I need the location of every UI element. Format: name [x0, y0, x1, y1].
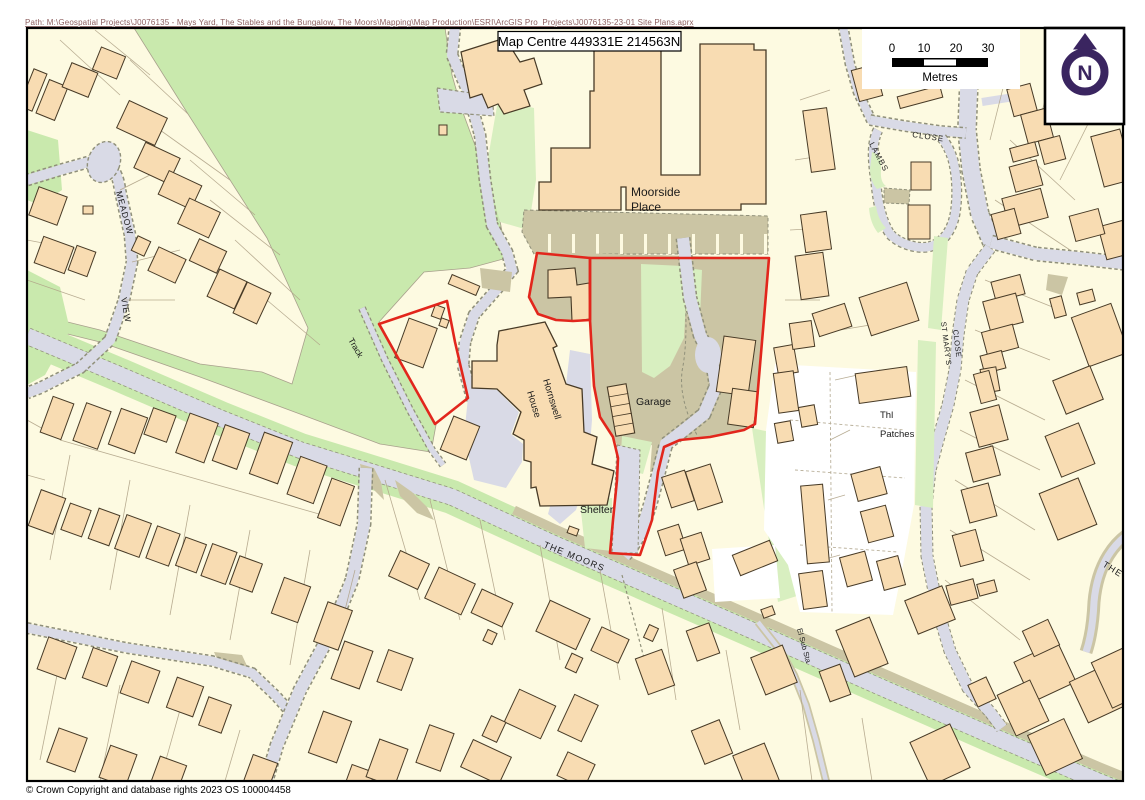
svg-text:© Crown Copyright and database: © Crown Copyright and database rights 20…	[26, 785, 291, 796]
svg-text:Path: M:\Geospatial Projects\J: Path: M:\Geospatial Projects\J0076135 - …	[25, 18, 694, 27]
svg-text:0: 0	[889, 43, 895, 55]
svg-text:Garage: Garage	[636, 396, 671, 408]
svg-text:Moorside: Moorside	[631, 185, 681, 199]
svg-text:Shelter: Shelter	[580, 504, 614, 516]
svg-text:N: N	[1077, 62, 1092, 85]
svg-text:20: 20	[950, 43, 963, 55]
svg-text:Thl: Thl	[880, 410, 893, 421]
svg-text:10: 10	[918, 43, 931, 55]
svg-text:Metres: Metres	[922, 72, 957, 84]
svg-text:30: 30	[982, 43, 995, 55]
svg-text:Map Centre 449331E 214563N: Map Centre 449331E 214563N	[498, 34, 681, 49]
svg-text:Patches: Patches	[880, 429, 915, 440]
svg-text:Place: Place	[631, 200, 661, 214]
